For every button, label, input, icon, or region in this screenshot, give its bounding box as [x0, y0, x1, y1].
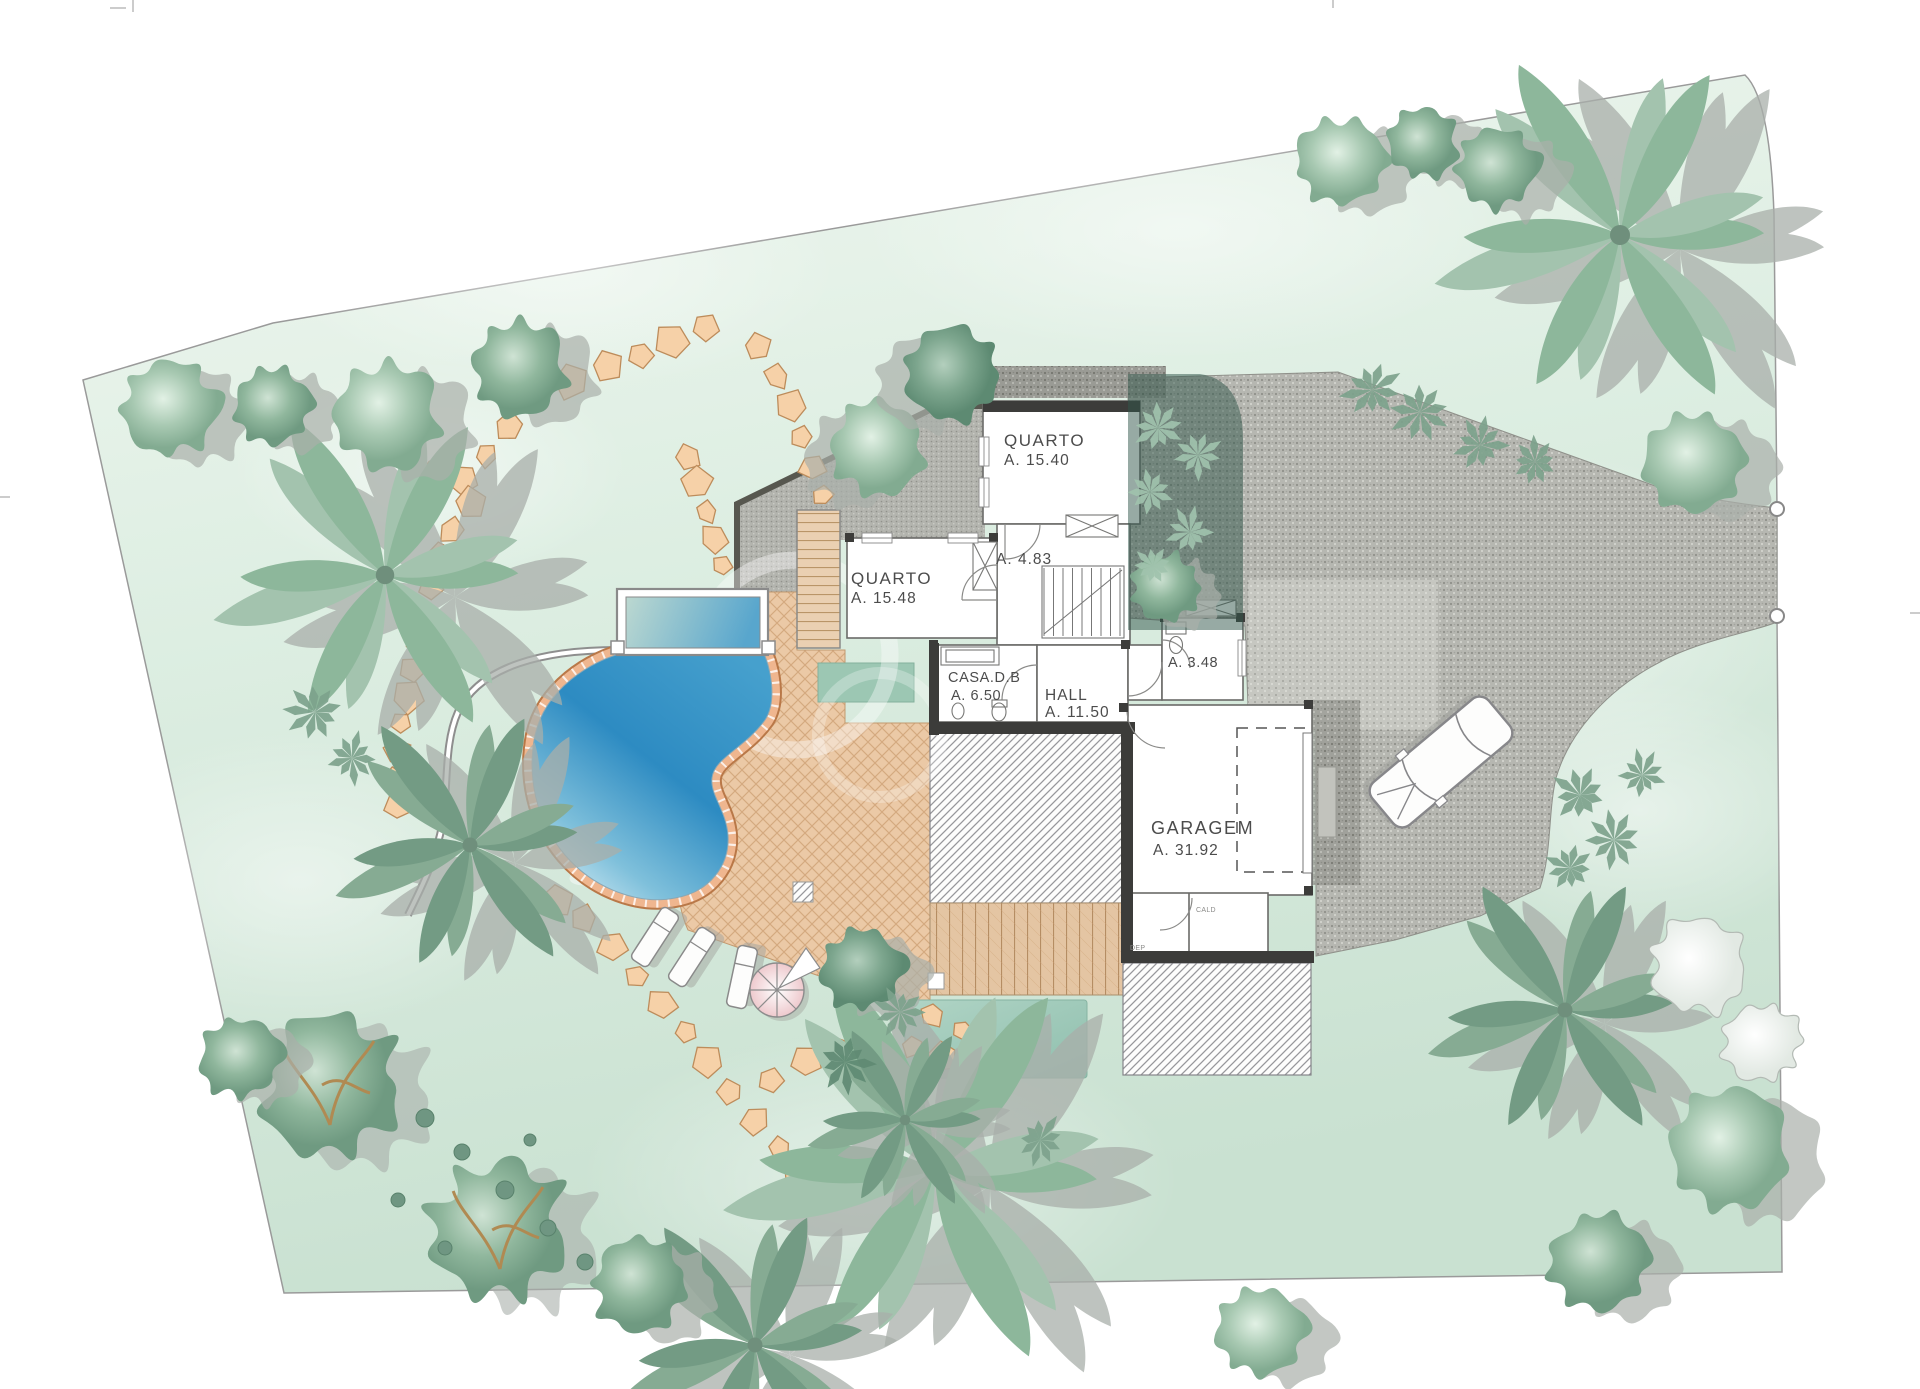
label-hall-area: A. 11.50	[1045, 704, 1110, 721]
south-deck	[1123, 963, 1311, 1075]
terrace-step-pad	[793, 882, 813, 902]
site-plan-sheet: QUARTO A. 15.40 QUARTO A. 15.48 A. 4.83 …	[0, 0, 1920, 1389]
site-plan-drawing: QUARTO A. 15.40 QUARTO A. 15.48 A. 4.83 …	[0, 0, 1920, 1389]
room-cald-dep	[1131, 893, 1268, 955]
hall-column	[1119, 703, 1128, 712]
label-quarto2-name: QUARTO	[851, 569, 932, 588]
garden-steps	[797, 510, 840, 648]
label-quarto1-name: QUARTO	[1004, 431, 1085, 450]
bush-icon	[454, 1144, 470, 1160]
label-wc-area: A. 3.48	[1168, 655, 1218, 671]
bush-icon	[540, 1220, 556, 1236]
bush-icon	[438, 1241, 452, 1255]
label-hall-name: HALL	[1045, 687, 1088, 704]
garage-side-pad	[1318, 767, 1336, 837]
bush-icon	[391, 1193, 405, 1207]
bush-icon	[577, 1254, 593, 1270]
label-quarto1-area: A. 15.40	[1004, 452, 1070, 469]
label-dep: DEP	[1130, 945, 1145, 952]
label-casadb-name: CASA.D.B	[948, 670, 1021, 686]
room-garagem	[1128, 705, 1312, 895]
bush-icon	[524, 1134, 536, 1146]
pool-lap-section	[611, 589, 775, 655]
label-corridor-area: A. 4.83	[996, 551, 1052, 568]
label-quarto2-area: A. 15.48	[851, 590, 917, 607]
bush-icon	[416, 1109, 434, 1127]
label-casadb-area: A. 6.50	[951, 688, 1001, 704]
boardwalk	[930, 903, 1123, 995]
garage-door	[1303, 733, 1312, 873]
label-garagem-name: GARAGEM	[1151, 818, 1254, 838]
label-garagem-area: A. 31.92	[1153, 842, 1219, 859]
tree-icon	[1214, 1286, 1341, 1389]
label-cald: CALD	[1196, 907, 1216, 914]
staircase	[1042, 566, 1124, 638]
bush-icon	[496, 1181, 514, 1199]
